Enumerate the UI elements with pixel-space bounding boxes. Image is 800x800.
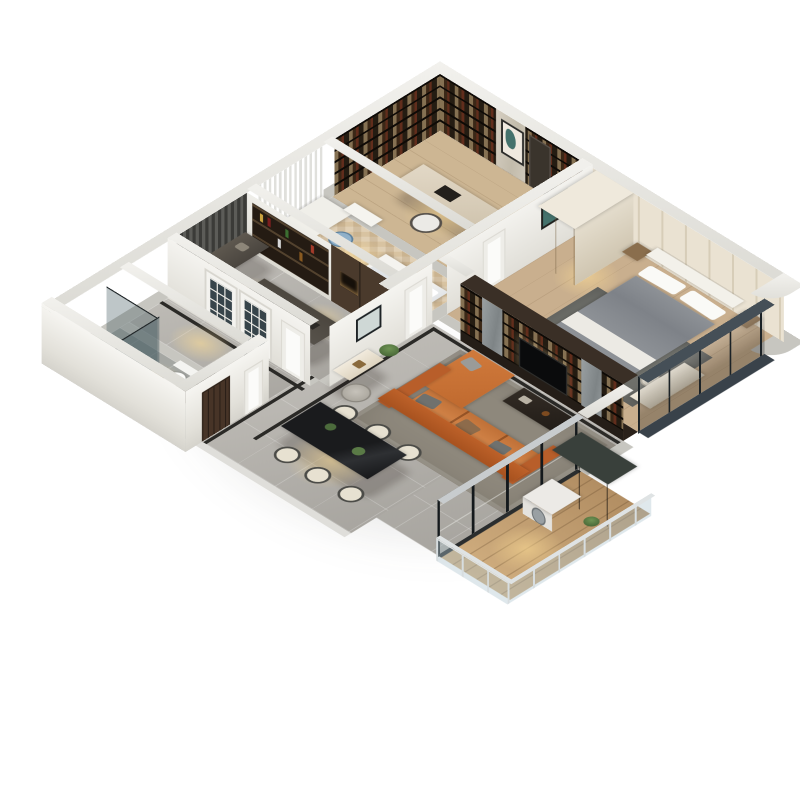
bottle [260, 213, 263, 223]
laptop [434, 185, 462, 202]
art-content [506, 127, 516, 152]
bottle [311, 244, 314, 254]
table-decor [540, 410, 551, 417]
bottle [268, 217, 271, 227]
table-decor [518, 395, 533, 404]
bottle [299, 252, 302, 262]
hallway-wall-art [356, 304, 381, 342]
table-plant [322, 422, 339, 432]
table-plant [349, 445, 368, 457]
counter-item [234, 242, 251, 252]
apartment-render-scene [0, 0, 800, 800]
console-decor [352, 360, 367, 369]
bottle [285, 229, 288, 239]
coffee-niche [340, 271, 358, 296]
bottle [278, 238, 281, 248]
